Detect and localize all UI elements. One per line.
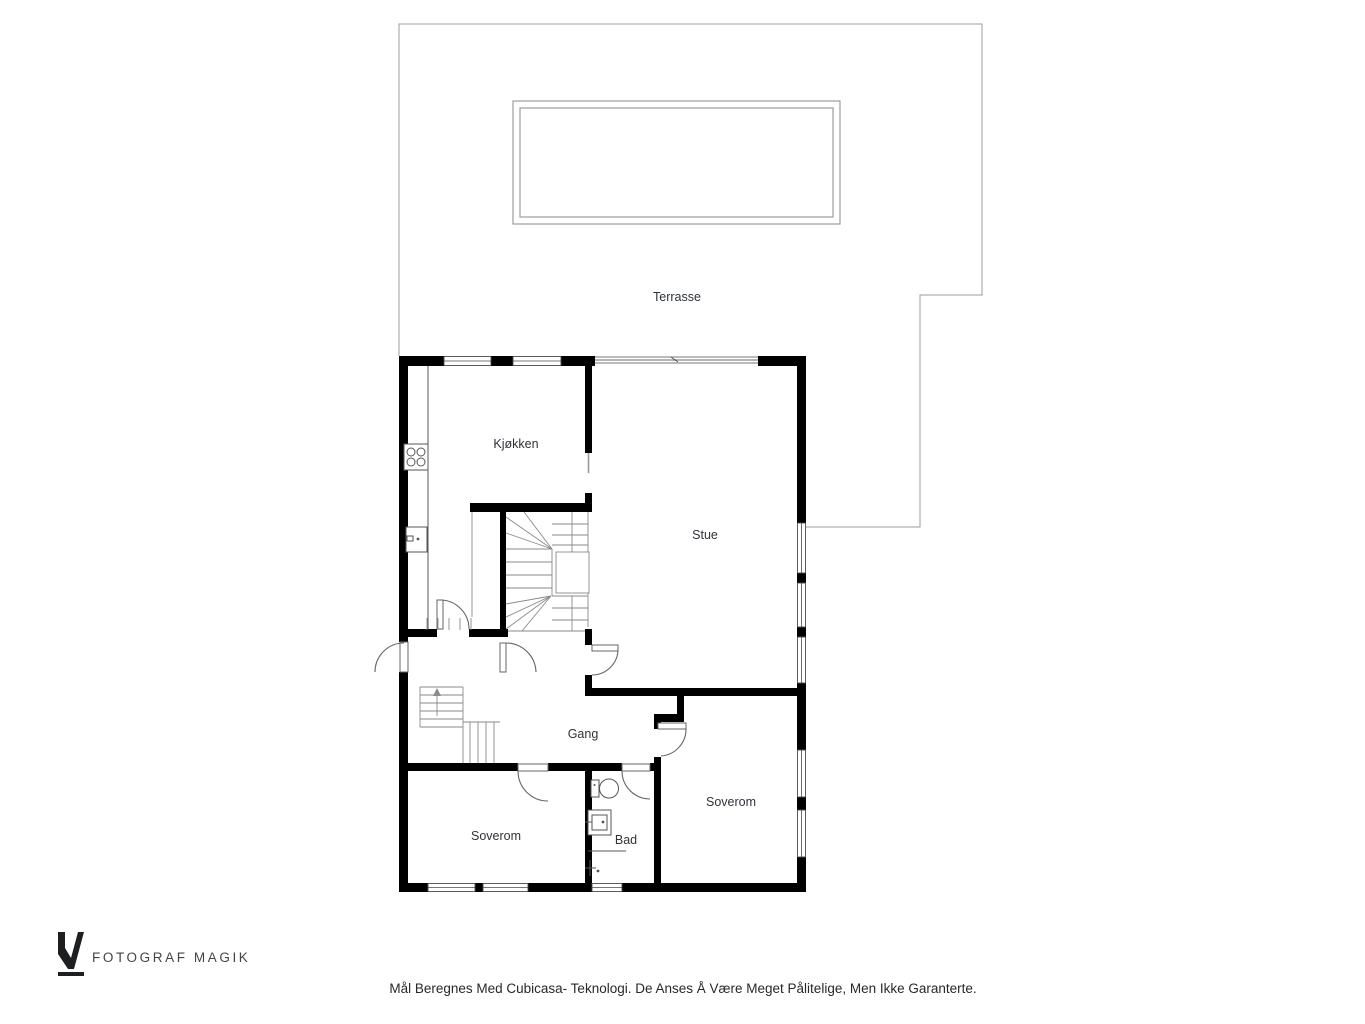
room-label-gang: Gang (568, 727, 599, 741)
pool-inner (520, 108, 833, 217)
soverom-right-door (658, 723, 686, 756)
room-label-soverom-left: Soverom (471, 829, 521, 843)
bathroom-sink-icon (585, 810, 611, 835)
main-staircase (427, 512, 589, 631)
bad-door (622, 764, 650, 799)
room-label-terrasse: Terrasse (653, 290, 701, 304)
toilet-icon (591, 779, 619, 798)
floorplan-page: Terrasse Kjøkken Stue Gang Soverom Bad S… (0, 0, 1365, 1024)
logo-mark-icon (58, 932, 84, 976)
kitchen-sink-icon (406, 527, 427, 552)
terrace-outline (399, 24, 982, 527)
disclaimer-text: Mål Beregnes Med Cubicasa- Teknologi. De… (389, 981, 976, 996)
room-label-bad: Bad (615, 833, 637, 847)
room-label-stue: Stue (692, 528, 718, 542)
room-label-soverom-right: Soverom (706, 795, 756, 809)
entry-door (375, 642, 408, 672)
stove-icon (404, 444, 428, 470)
soverom-left-door (518, 764, 548, 801)
vestibule-gang-door (500, 643, 536, 672)
floorplan-drawing: Terrasse Kjøkken Stue Gang Soverom Bad S… (0, 0, 1365, 1024)
sliding-glass-wall (595, 357, 758, 363)
windows (428, 357, 806, 892)
room-label-kjokken: Kjøkken (493, 437, 538, 451)
secondary-staircase (420, 687, 500, 763)
logo-text: FOTOGRAF MAGIK (92, 950, 250, 965)
gang-stue-door (592, 645, 618, 675)
stair-direction-arrow (433, 688, 441, 716)
logo: FOTOGRAF MAGIK (58, 932, 250, 976)
kitchen-hall-door (437, 600, 469, 629)
